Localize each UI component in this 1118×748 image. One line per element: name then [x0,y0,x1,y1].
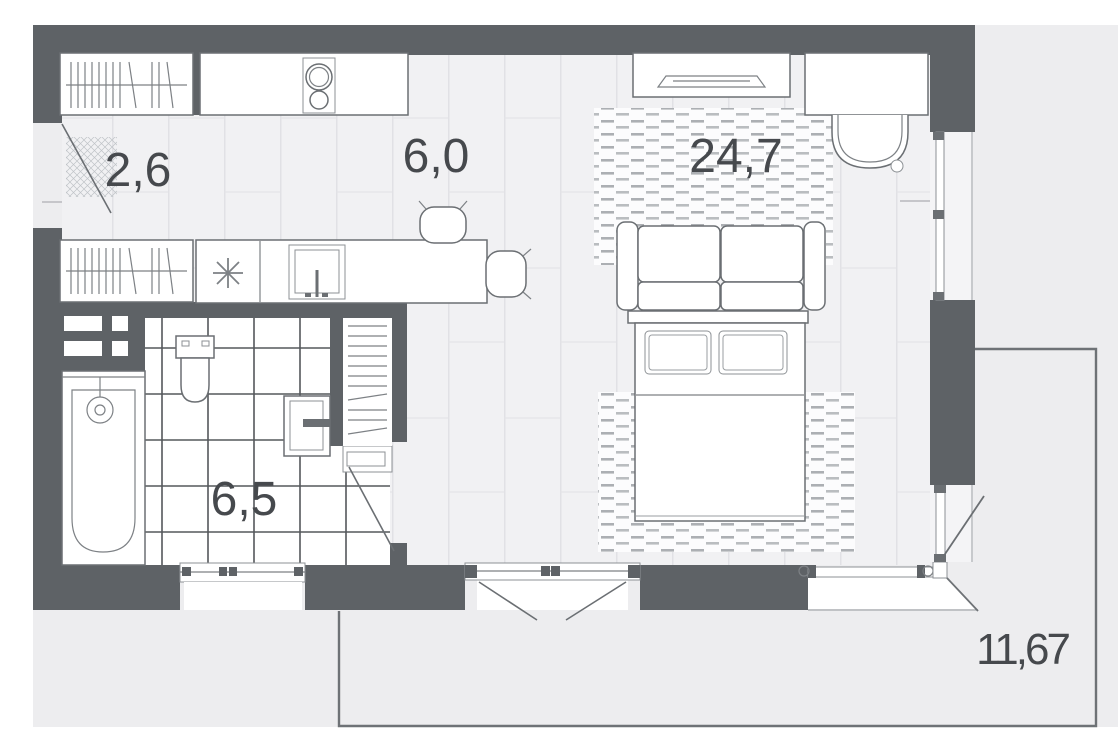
asterisk-icon [213,258,243,288]
pillow-icon [719,331,787,374]
desk-icon [805,53,928,115]
kitchen-counter-icon [200,53,408,115]
shelf-closet-icon [343,318,392,446]
tv-console-icon [633,53,790,97]
living-area-label: 24,7 [689,130,782,183]
kitchen-area-label: 6,0 [403,130,470,183]
bathtub-icon [62,371,145,565]
window-icon [930,132,973,300]
pillow-icon [645,331,711,374]
terrace-area-label: 11,67 [976,625,1069,674]
double-bed-icon [628,311,808,521]
hallway-area-label: 2,6 [105,144,172,197]
bathroom-area-label: 6,5 [211,473,278,526]
wardrobe-icon [60,53,193,115]
sink-icon [289,245,345,299]
wardrobe-icon [60,240,193,302]
toilet-icon [176,336,214,402]
floor-plan-canvas: 2,6 6,0 24,7 6,5 11,67 [0,0,1118,748]
washbasin-icon [284,396,330,456]
cooktop-icon [303,58,335,113]
sofa-icon [617,222,825,310]
window-icon [180,563,305,610]
kitchen-island-icon [196,240,487,303]
floor-plan: 2,6 6,0 24,7 6,5 11,67 [0,0,1118,748]
ventilation-shaft-icon [33,302,145,371]
